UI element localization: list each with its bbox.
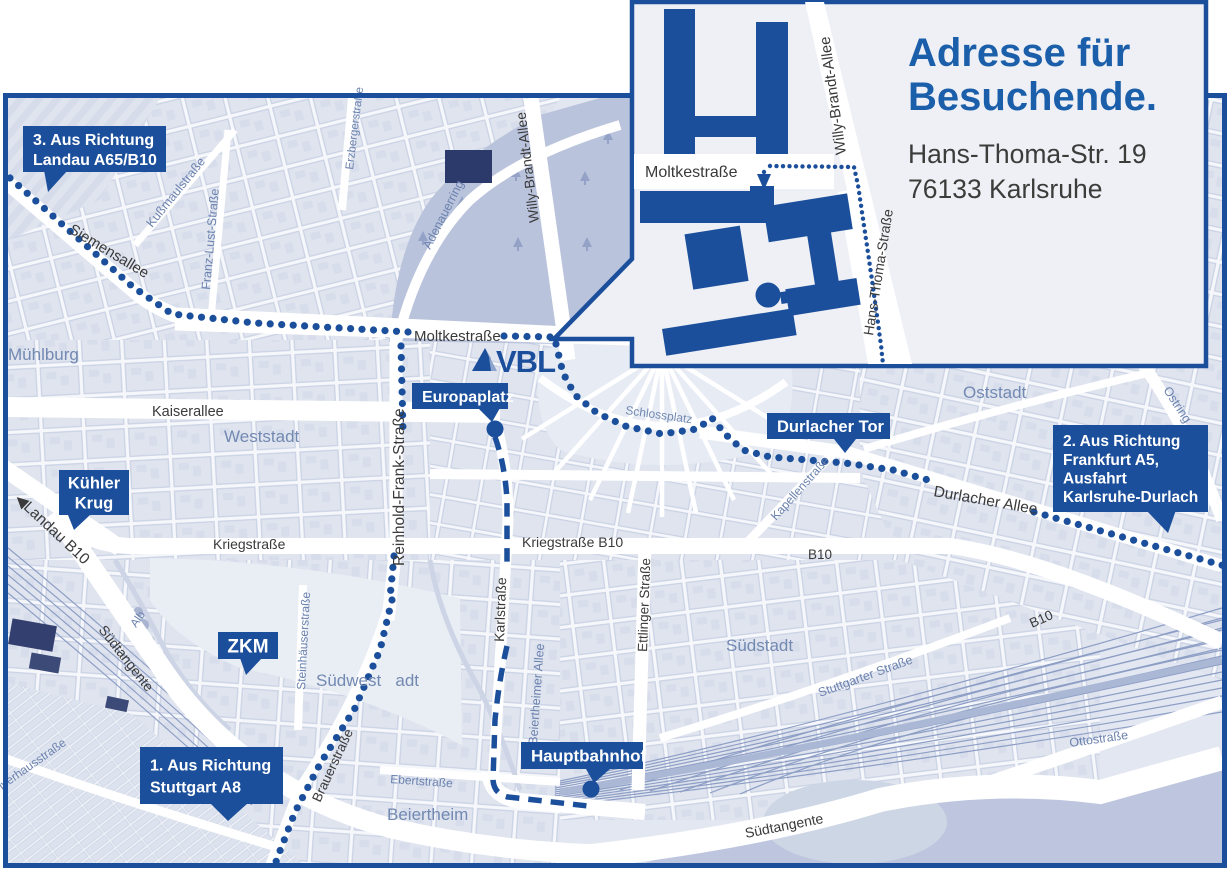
svg-text:Mühlburg: Mühlburg <box>8 345 79 364</box>
svg-text:Landau A65/B10: Landau A65/B10 <box>33 152 157 169</box>
svg-text:B10: B10 <box>808 547 832 562</box>
svg-text:Moltkestraße: Moltkestraße <box>414 328 501 345</box>
svg-text:Hauptbahnhof: Hauptbahnhof <box>531 747 647 766</box>
svg-text:Kriegstraße B10: Kriegstraße B10 <box>522 534 623 550</box>
svg-text:3. Aus Richtung: 3. Aus Richtung <box>33 132 154 149</box>
svg-text:Durlacher Tor: Durlacher Tor <box>777 418 885 436</box>
svg-text:Adresse für: Adresse für <box>908 31 1130 75</box>
svg-text:Weststadt: Weststadt <box>224 427 300 446</box>
svg-text:Oststadt: Oststadt <box>963 383 1027 402</box>
svg-text:Moltkestraße: Moltkestraße <box>645 164 738 181</box>
svg-text:Krug: Krug <box>75 494 114 512</box>
svg-text:76133 Karlsruhe: 76133 Karlsruhe <box>908 174 1102 204</box>
svg-text:Frankfurt A5,: Frankfurt A5, <box>1063 452 1159 469</box>
svg-text:Kaiserallee: Kaiserallee <box>152 404 224 420</box>
svg-text:Kühler: Kühler <box>68 474 121 492</box>
svg-text:Kriegstraße: Kriegstraße <box>213 536 286 552</box>
svg-text:VBL: VBL <box>496 344 555 379</box>
svg-text:Reinhold-Frank-Straße: Reinhold-Frank-Straße <box>391 408 408 566</box>
svg-text:Karlstraße: Karlstraße <box>491 577 509 642</box>
svg-text:Hans-Thoma-Str. 19: Hans-Thoma-Str. 19 <box>908 139 1147 169</box>
svg-text:Karlsruhe-Durlach: Karlsruhe-Durlach <box>1063 489 1198 506</box>
svg-text:Besuchende.: Besuchende. <box>908 75 1157 119</box>
svg-text:Stuttgart A8: Stuttgart A8 <box>150 779 241 796</box>
svg-text:Beiertheim: Beiertheim <box>387 805 468 824</box>
svg-text:Südwest adt: Südwest adt <box>316 671 419 690</box>
svg-text:Ausfahrt: Ausfahrt <box>1063 470 1127 487</box>
svg-text:2. Aus Richtung: 2. Aus Richtung <box>1063 433 1180 450</box>
svg-text:Südstadt: Südstadt <box>726 636 793 655</box>
svg-text:Europaplatz: Europaplatz <box>422 389 514 406</box>
svg-text:1. Aus Richtung: 1. Aus Richtung <box>150 757 271 774</box>
svg-text:ZKM: ZKM <box>227 636 268 657</box>
